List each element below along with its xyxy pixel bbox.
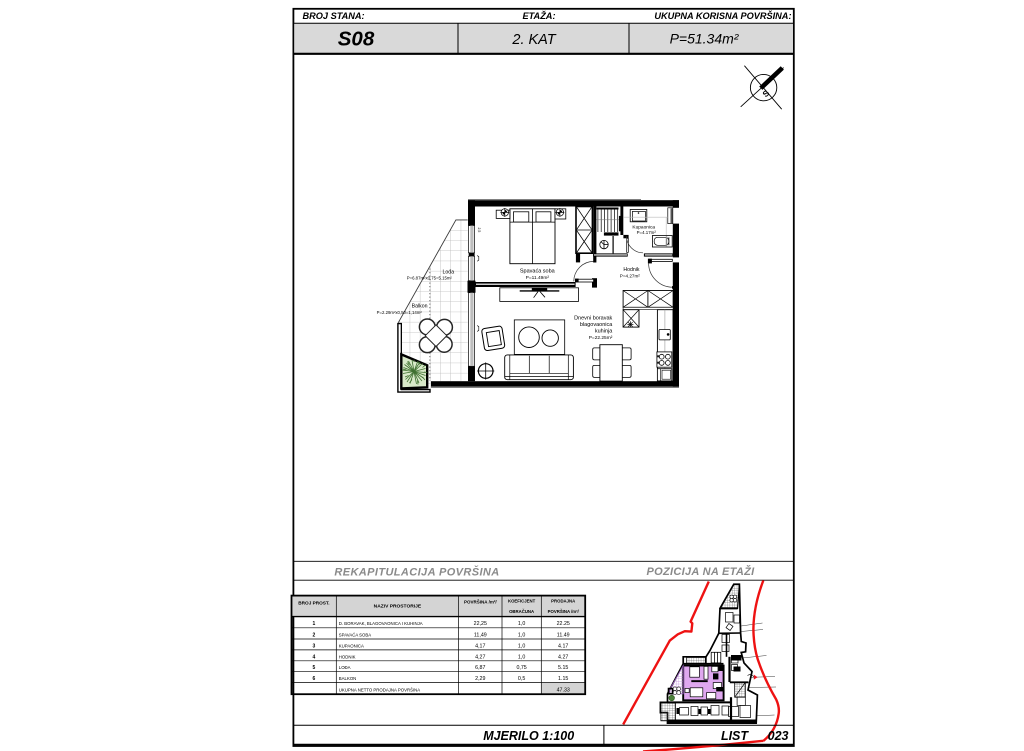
svg-text:S08: S08	[338, 28, 375, 51]
svg-text:5.15: 5.15	[558, 665, 568, 671]
svg-text:11.49: 11.49	[557, 632, 570, 638]
svg-text:1,0: 1,0	[518, 654, 525, 660]
svg-text:Dnevni boravak: Dnevni boravak	[574, 315, 612, 321]
svg-text:Hodnik: Hodnik	[623, 267, 640, 273]
svg-text:2. KAT: 2. KAT	[511, 32, 556, 48]
svg-text:0,75: 0,75	[516, 665, 526, 671]
svg-text:2: 2	[313, 632, 316, 638]
svg-text:BALKON: BALKON	[339, 676, 356, 681]
svg-text:Kupaonica: Kupaonica	[632, 224, 655, 230]
svg-text:ETAŽA:: ETAŽA:	[523, 10, 556, 21]
svg-text:POVRŠINA /m²/: POVRŠINA /m²/	[548, 609, 580, 614]
svg-text:POZICIJA NA ETAŽI: POZICIJA NA ETAŽI	[647, 565, 756, 578]
svg-text:4.17: 4.17	[558, 643, 568, 649]
svg-text:P=6.87m²x0.75=5.15m²: P=6.87m²x0.75=5.15m²	[407, 275, 453, 280]
svg-text:NAZIV PROSTORIJE: NAZIV PROSTORIJE	[374, 604, 422, 610]
svg-text:KOEFICJENT: KOEFICJENT	[508, 599, 536, 604]
svg-text:D. BORAVAK, BLAGOVAONICA I KUH: D. BORAVAK, BLAGOVAONICA I KUHINJA	[339, 621, 423, 626]
svg-text:22,25: 22,25	[474, 621, 487, 627]
svg-text:6: 6	[313, 676, 316, 682]
svg-text:0,5: 0,5	[518, 676, 525, 682]
svg-text:4: 4	[313, 654, 316, 660]
svg-text:PRODAJNA: PRODAJNA	[551, 599, 575, 604]
svg-text:Balkon: Balkon	[412, 304, 428, 310]
svg-text:Lođa: Lođa	[443, 269, 455, 275]
svg-text:KUPAONICA: KUPAONICA	[339, 643, 364, 648]
svg-text:P=2.29m²x0,50=1,14m²: P=2.29m²x0,50=1,14m²	[377, 310, 423, 315]
svg-text:4,17: 4,17	[475, 643, 485, 649]
svg-text:11,49: 11,49	[474, 632, 487, 638]
svg-text:UKUPNA KORISNA POVRŠINA:: UKUPNA KORISNA POVRŠINA:	[654, 10, 791, 21]
svg-text:kuhinja: kuhinja	[595, 328, 613, 334]
svg-text:P=4.27m²: P=4.27m²	[620, 274, 641, 279]
svg-text:023: 023	[768, 729, 789, 743]
svg-text:1.15: 1.15	[558, 676, 568, 682]
svg-text:3: 3	[313, 643, 316, 649]
svg-text:2,29: 2,29	[475, 676, 485, 682]
svg-text:5: 5	[313, 665, 316, 671]
svg-text:REKAPITULACIJA POVRŠINA: REKAPITULACIJA POVRŠINA	[334, 566, 499, 579]
svg-text:UKUPNA NETTO PRODAJNA POVRŠINA: UKUPNA NETTO PRODAJNA POVRŠINA	[339, 686, 420, 692]
svg-text:4,27: 4,27	[475, 654, 485, 660]
svg-text:6,87: 6,87	[475, 665, 485, 671]
svg-text:1,0: 1,0	[518, 621, 525, 627]
svg-text:BROJ STANA:: BROJ STANA:	[303, 11, 365, 21]
svg-text:SPAVAĆA SOBA: SPAVAĆA SOBA	[339, 631, 371, 637]
svg-text:4.27: 4.27	[558, 654, 568, 660]
svg-text:Spavaća soba: Spavaća soba	[520, 268, 556, 274]
svg-text:22.25: 22.25	[557, 621, 570, 627]
svg-text:OBRAČUNA: OBRAČUNA	[509, 609, 534, 614]
svg-text:BROJ PROST.: BROJ PROST.	[298, 601, 329, 606]
svg-text:1: 1	[313, 621, 316, 627]
svg-text:P=11.49m²: P=11.49m²	[526, 275, 550, 281]
svg-text:blagovaonica: blagovaonica	[580, 322, 613, 328]
svg-text:MJERILO 1:100: MJERILO 1:100	[483, 729, 574, 743]
svg-text:1,0: 1,0	[518, 643, 525, 649]
svg-text:LIST: LIST	[721, 729, 749, 743]
svg-text:P=22.25m²: P=22.25m²	[589, 335, 613, 341]
svg-text:HODNIK: HODNIK	[339, 654, 356, 659]
svg-text:1,0: 1,0	[518, 632, 525, 638]
svg-text:P=4.17m²: P=4.17m²	[637, 230, 657, 235]
svg-text:P=51.34m²: P=51.34m²	[670, 31, 740, 47]
svg-text:LOĐA: LOĐA	[339, 665, 351, 670]
svg-text:47.33: 47.33	[557, 687, 570, 693]
svg-text:2,5: 2,5	[477, 228, 481, 233]
